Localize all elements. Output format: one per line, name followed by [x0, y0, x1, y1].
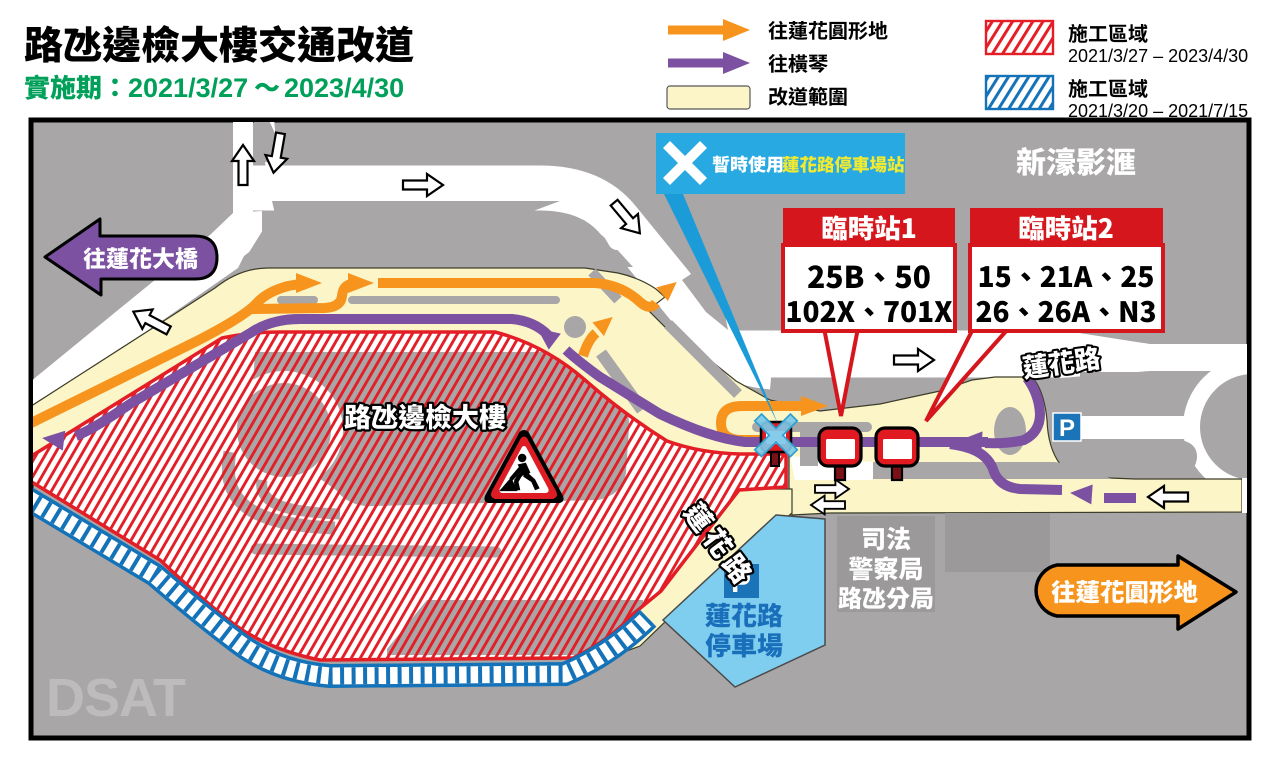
svg-text:DSAT: DSAT	[46, 668, 186, 728]
svg-text:2021/3/27 – 2023/4/30: 2021/3/27 – 2023/4/30	[1068, 46, 1248, 66]
svg-text:2021/3/27: 2021/3/27	[128, 73, 248, 103]
svg-text:2023/4/30: 2023/4/30	[284, 73, 404, 103]
svg-text:P: P	[1059, 415, 1075, 442]
